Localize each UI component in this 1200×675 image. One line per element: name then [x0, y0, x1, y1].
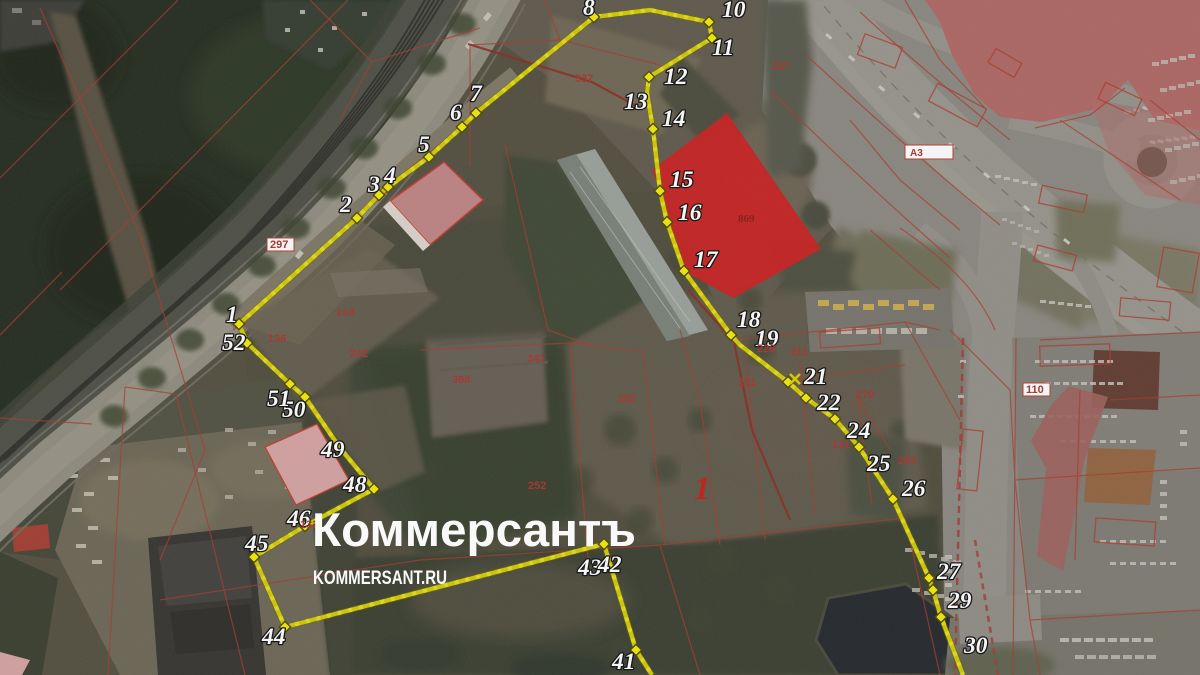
svg-text:Коммерсантъ: Коммерсантъ: [312, 503, 636, 556]
svg-text:KOMMERSANT.RU: KOMMERSANT.RU: [313, 567, 447, 589]
